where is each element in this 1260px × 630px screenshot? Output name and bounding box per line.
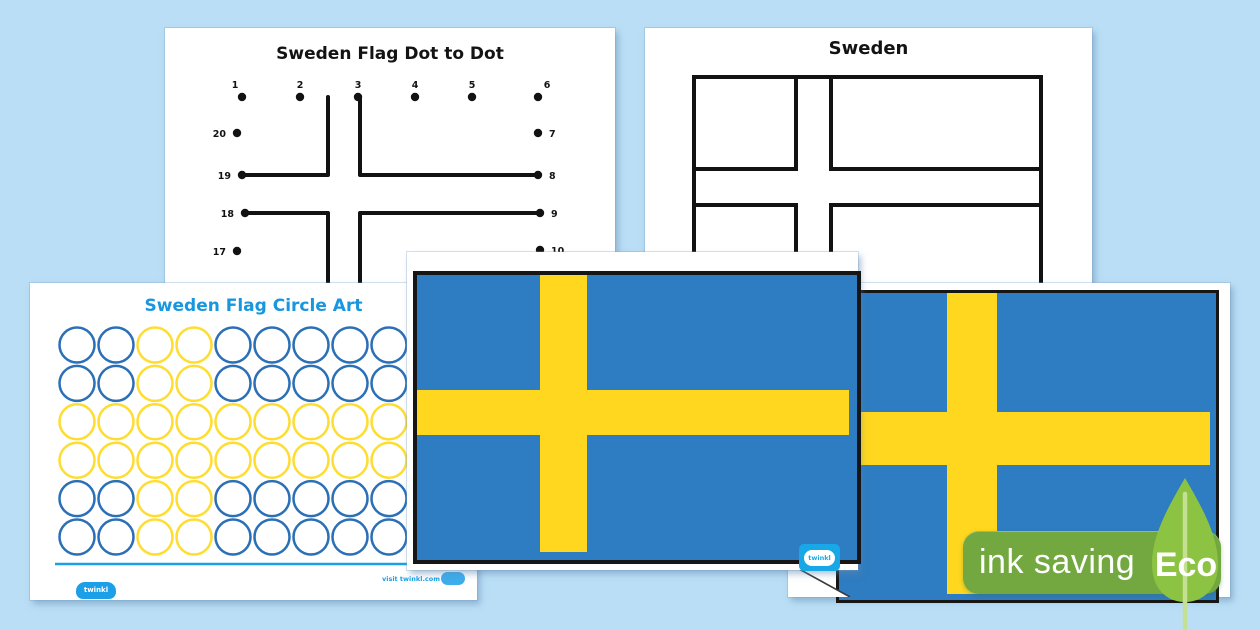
blue-circle <box>255 328 290 363</box>
flag-outline-quadrant-top-left <box>692 75 798 171</box>
eco-label: Eco <box>1148 546 1224 585</box>
dot-number: 7 <box>549 129 556 140</box>
flag-outline-border-segment <box>796 75 832 79</box>
blue-circle <box>333 328 368 363</box>
blue-circle <box>372 366 407 401</box>
yellow-circle <box>372 443 407 478</box>
flag-outline-border-segment <box>1039 168 1043 206</box>
blue-circle <box>99 366 134 401</box>
yellow-circle <box>294 404 329 439</box>
yellow-circle <box>99 443 134 478</box>
page-dot-to-dot-worksheet: Sweden Flag Dot to Dot 12345678910171819… <box>165 28 615 286</box>
dot <box>534 129 542 137</box>
dot-number: 3 <box>355 80 362 91</box>
flag-outline-border-segment <box>692 168 696 206</box>
dot <box>354 93 362 101</box>
yellow-circle <box>60 404 95 439</box>
blue-circle <box>294 481 329 516</box>
twinkl-logo-small <box>441 572 465 585</box>
yellow-circle <box>294 443 329 478</box>
yellow-circle <box>138 328 173 363</box>
blue-circle <box>216 366 251 401</box>
dot <box>233 129 241 137</box>
yellow-circle <box>138 520 173 555</box>
page-flag-outline-worksheet: Sweden <box>645 28 1092 283</box>
yellow-circle <box>60 443 95 478</box>
blue-circle <box>372 328 407 363</box>
flag-outline-quadrant-top-right <box>829 75 1043 171</box>
dot-to-dot-flag-drawing: 1234567891017181920 <box>165 28 615 286</box>
dot <box>411 93 419 101</box>
outline-title: Sweden <box>645 38 1092 59</box>
yellow-circle <box>138 481 173 516</box>
blue-circle <box>60 328 95 363</box>
dot <box>296 93 304 101</box>
sweden-flag-center: twinkl <box>413 271 861 564</box>
blue-circle <box>99 328 134 363</box>
yellow-circle <box>255 404 290 439</box>
dot <box>468 93 476 101</box>
yellow-circle <box>333 443 368 478</box>
blue-circle <box>60 366 95 401</box>
flag-cross-horizontal-bar <box>417 390 849 435</box>
dot-number: 20 <box>213 129 227 140</box>
flag-cross-horizontal-bar <box>839 412 1210 465</box>
dot-number: 8 <box>549 171 556 182</box>
dot-number: 2 <box>297 80 304 91</box>
dot-number: 5 <box>469 80 476 91</box>
blue-circle <box>333 520 368 555</box>
blue-circle <box>294 328 329 363</box>
blue-circle <box>255 481 290 516</box>
yellow-circle <box>216 443 251 478</box>
dot <box>241 209 249 217</box>
yellow-circle <box>177 481 212 516</box>
yellow-circle <box>216 404 251 439</box>
blue-circle <box>255 366 290 401</box>
dot <box>536 209 544 217</box>
yellow-circle <box>177 366 212 401</box>
blue-circle <box>216 481 251 516</box>
blue-circle <box>372 520 407 555</box>
yellow-circle <box>177 443 212 478</box>
blue-circle <box>216 328 251 363</box>
blue-circle <box>99 520 134 555</box>
twinkl-cloud-icon: twinkl <box>804 550 835 566</box>
twinkl-sweden-resource-preview: Sweden Flag Dot to Dot 12345678910171819… <box>0 0 1260 630</box>
dot-number: 1 <box>232 80 239 91</box>
yellow-circle <box>177 520 212 555</box>
dot-number: 6 <box>544 80 551 91</box>
blue-circle <box>99 481 134 516</box>
yellow-circle <box>333 404 368 439</box>
twinkl-url-text: visit twinkl.com <box>382 575 440 583</box>
dot <box>534 93 542 101</box>
blue-circle <box>333 366 368 401</box>
blue-circle <box>372 481 407 516</box>
dot-number: 9 <box>551 209 558 220</box>
blue-circle <box>294 520 329 555</box>
yellow-circle <box>138 443 173 478</box>
blue-circle <box>216 520 251 555</box>
yellow-circle <box>255 443 290 478</box>
dot-number: 17 <box>213 247 226 258</box>
dot-number: 18 <box>221 209 235 220</box>
yellow-circle <box>99 404 134 439</box>
yellow-circle <box>177 328 212 363</box>
dot <box>238 171 246 179</box>
yellow-circle <box>177 404 212 439</box>
dot-number: 19 <box>218 171 231 182</box>
page-colour-flag-center: twinkl <box>407 252 858 570</box>
twinkl-logo: twinkl <box>76 582 116 599</box>
dot <box>233 247 241 255</box>
blue-circle <box>333 481 368 516</box>
blue-circle <box>294 366 329 401</box>
ink-saving-label: ink saving <box>979 543 1135 582</box>
blue-circle <box>60 481 95 516</box>
dot-number: 4 <box>412 80 419 91</box>
yellow-circle <box>138 366 173 401</box>
blue-circle <box>60 520 95 555</box>
yellow-circle <box>372 404 407 439</box>
twinkl-logo-badge: twinkl <box>799 544 840 571</box>
dot <box>534 171 542 179</box>
yellow-circle <box>138 404 173 439</box>
blue-circle <box>255 520 290 555</box>
dot <box>238 93 246 101</box>
